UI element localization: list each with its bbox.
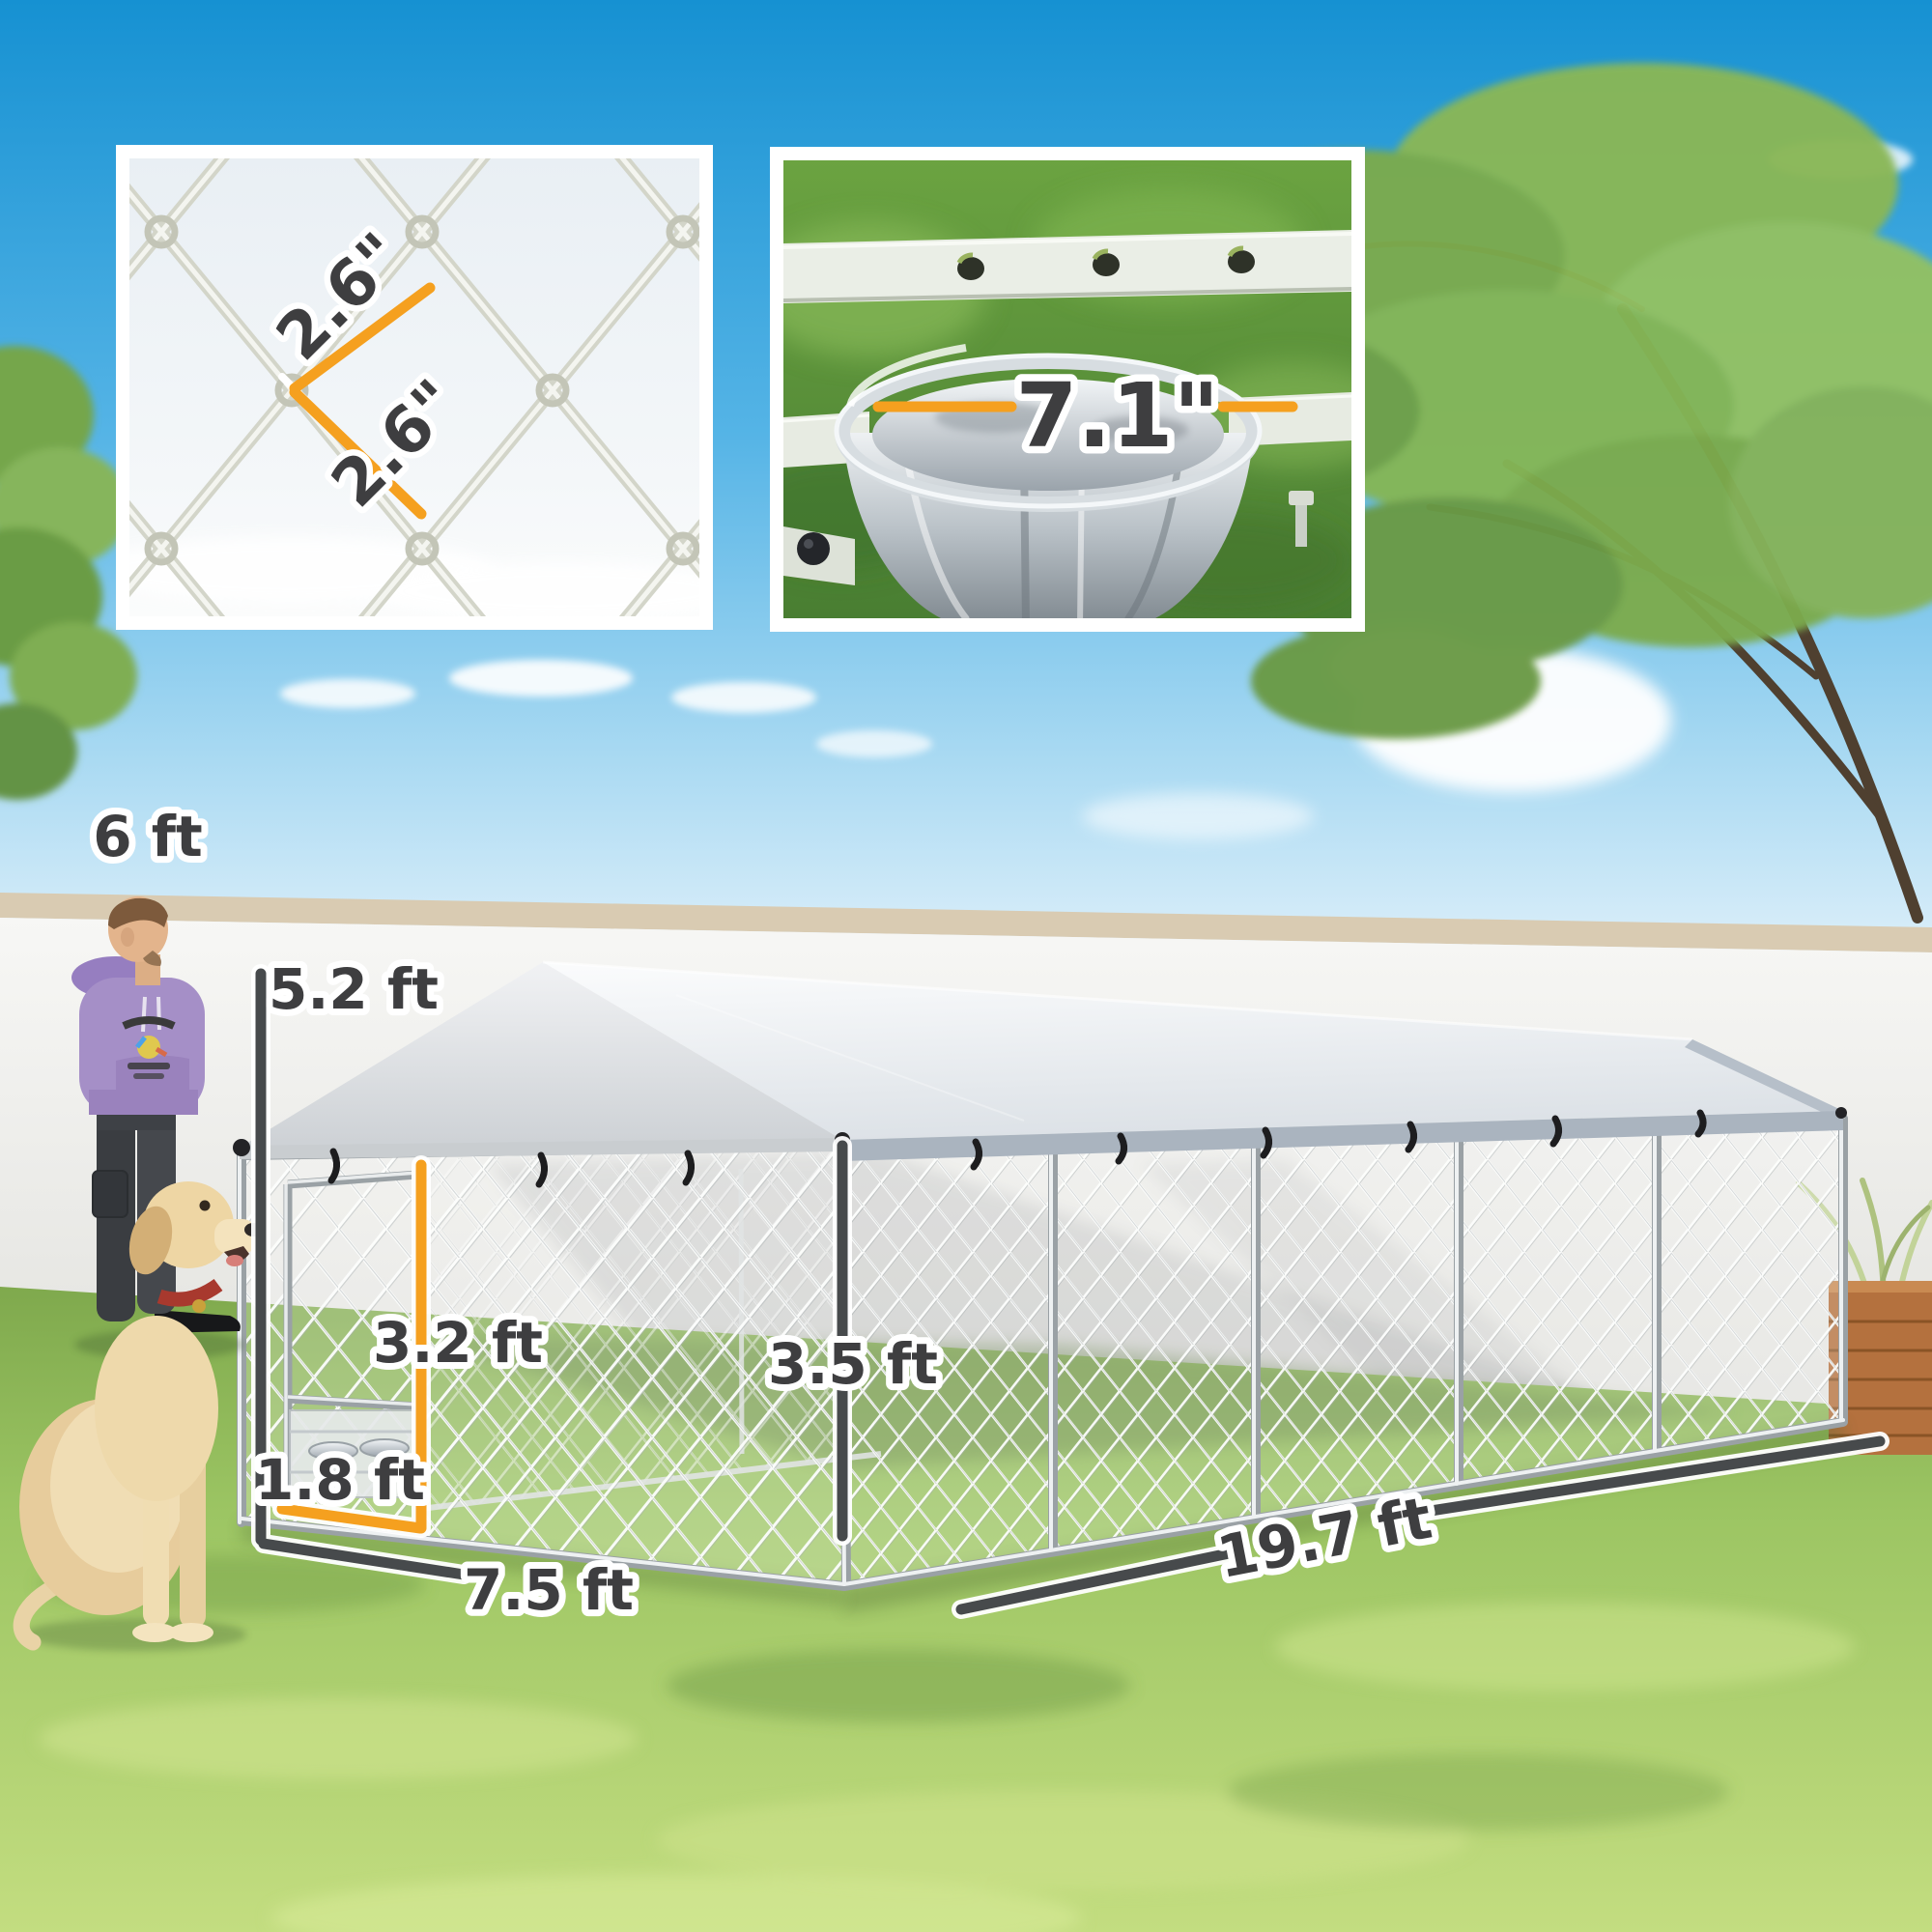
- product-photo: 2.6" 2.6": [0, 0, 1932, 1932]
- corner-cap: [1835, 1107, 1847, 1119]
- label-side-height: 3.5 ft: [768, 1331, 938, 1397]
- label-door-height: 3.2 ft: [373, 1310, 543, 1376]
- inset-mesh-detail: 2.6" 2.6": [87, 145, 744, 630]
- label-kennel-height: 5.2 ft: [269, 956, 439, 1022]
- label-kennel-width: 7.5 ft: [464, 1557, 634, 1623]
- dog-eye: [200, 1201, 211, 1211]
- cargo-pocket: [93, 1171, 128, 1217]
- label-wall-height: 6 ft: [93, 804, 203, 869]
- scene-canvas: 2.6" 2.6": [0, 0, 1932, 1932]
- dog-tongue: [226, 1255, 243, 1266]
- dog-chest: [95, 1316, 218, 1501]
- inset-bowl-detail: 7.1": [734, 147, 1401, 632]
- corner-cap: [233, 1139, 250, 1156]
- collar-tag: [192, 1299, 206, 1313]
- bolt: [1295, 502, 1307, 547]
- label-bowl-diameter: 7.1": [1016, 364, 1220, 468]
- label-door-width: 1.8 ft: [255, 1447, 425, 1513]
- rail-knob: [797, 532, 830, 565]
